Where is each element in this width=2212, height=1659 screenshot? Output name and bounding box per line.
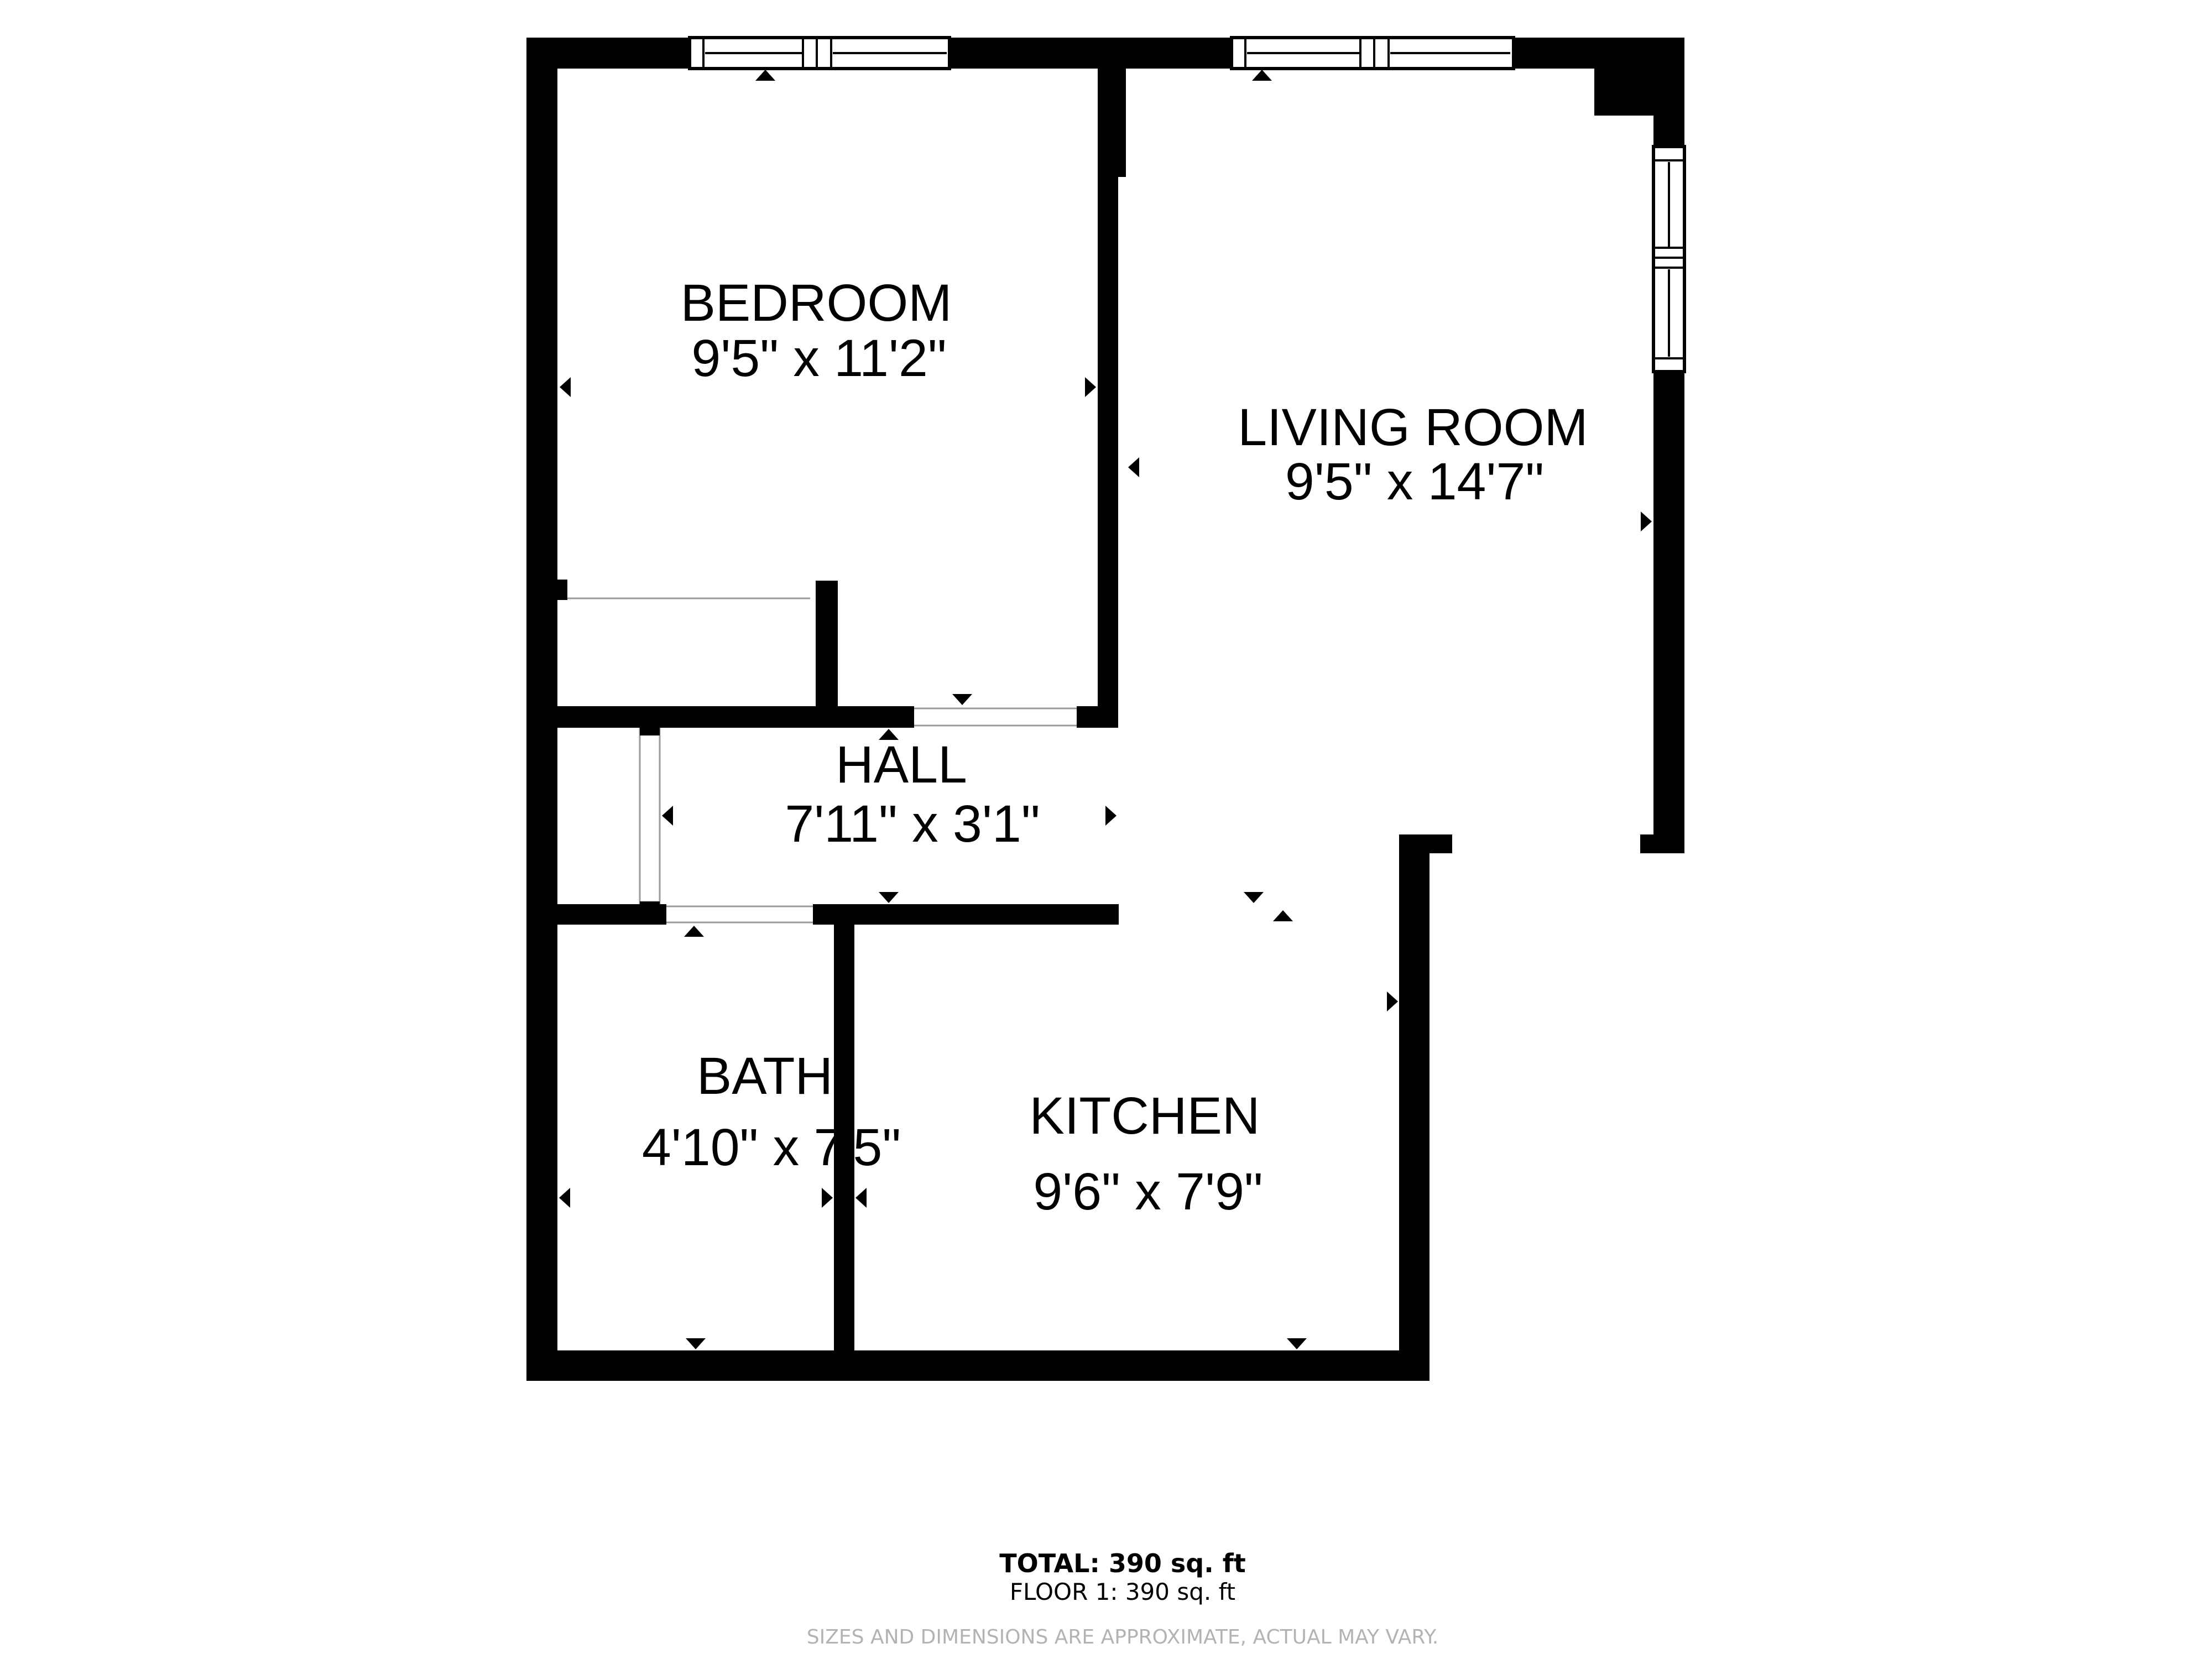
room-dims-hall: 7'11" x 3'1"	[785, 795, 1040, 853]
wall-bedroom-living-divider-top	[1098, 69, 1126, 177]
bath-arrow-down-icon	[686, 1338, 706, 1349]
bath-door-threshold	[666, 906, 813, 922]
living-room-arrow-up-icon	[1252, 70, 1272, 81]
wall-bedroom-door-jamb	[1077, 706, 1118, 728]
room-label-bath: BATH	[697, 1047, 833, 1105]
room-dims-bath: 4'10" x 7'5"	[642, 1118, 901, 1177]
kitchen-arrow-up-icon	[1273, 910, 1293, 921]
hall-door-stub-top	[640, 728, 660, 735]
bedroom-arrow-up-icon	[755, 70, 775, 81]
wall-hall-bottom-mid	[813, 904, 1119, 925]
bedroom-door-threshold	[914, 708, 1077, 726]
bedroom-arrow-down-icon	[952, 694, 972, 705]
hall-arrow-left-icon	[662, 806, 673, 826]
living-room-arrow-right-icon	[1641, 512, 1652, 531]
wall-exterior-right	[1653, 372, 1684, 853]
kitchen-arrow-left-icon	[855, 1188, 867, 1208]
bedroom-arrow-right-icon	[1085, 377, 1096, 397]
wall-right-notch	[1594, 69, 1684, 116]
wall-right-above-window	[1653, 116, 1684, 147]
room-label-hall: HALL	[836, 735, 967, 794]
bedroom-window	[690, 38, 950, 69]
wall-hall-top	[526, 706, 914, 728]
room-label-living-room: LIVING ROOM	[1238, 398, 1588, 457]
bedroom-arrow-left-icon	[560, 377, 571, 397]
room-label-kitchen: KITCHEN	[1030, 1087, 1260, 1145]
room-label-bedroom: BEDROOM	[681, 274, 952, 332]
bath-arrow-right-icon	[822, 1188, 833, 1208]
wall-exterior-bottom	[526, 1350, 1430, 1381]
hall-arrow-right-icon	[1105, 806, 1117, 826]
floor-plan-svg: BEDROOM 9'5" x 11'2" LIVING ROOM 9'5" x …	[0, 0, 2212, 1659]
wall-closet-jamb	[557, 580, 567, 600]
hall-arrow-down-icon	[879, 892, 899, 903]
room-dims-bedroom: 9'5" x 11'2"	[691, 329, 946, 388]
summary-block: TOTAL: 390 sq. ft FLOOR 1: 390 sq. ft SI…	[807, 1548, 1438, 1648]
wall-right-foot	[1640, 834, 1684, 853]
wall-bedroom-living-divider	[1098, 177, 1118, 706]
hall-arrow-up-icon	[879, 729, 899, 740]
kitchen-arrow-down-icon	[1287, 1338, 1307, 1349]
total-area-text: TOTAL: 390 sq. ft	[999, 1548, 1245, 1578]
living-room-window-top	[1232, 38, 1514, 69]
wall-bath-kitchen-divider	[834, 925, 854, 1350]
bath-arrow-left-icon	[559, 1188, 570, 1208]
hall-door-stub-bottom	[640, 901, 660, 910]
hall-door-leaf	[640, 728, 660, 905]
wall-closet-right	[816, 581, 838, 706]
kitchen-arrow-right-icon	[1387, 992, 1398, 1011]
living-room-window-right	[1653, 147, 1684, 372]
floor-plan-page: BEDROOM 9'5" x 11'2" LIVING ROOM 9'5" x …	[0, 0, 2212, 1659]
floor-area-text: FLOOR 1: 390 sq. ft	[1010, 1578, 1235, 1605]
bath-arrow-up-icon	[684, 926, 704, 937]
room-dims-kitchen: 9'6" x 7'9"	[1033, 1162, 1262, 1221]
living-room-arrow-down-icon	[1244, 892, 1264, 903]
room-dims-living-room: 9'5" x 14'7"	[1285, 452, 1544, 511]
living-room-arrow-left-icon	[1128, 457, 1139, 477]
disclaimer-text: SIZES AND DIMENSIONS ARE APPROXIMATE, AC…	[807, 1626, 1438, 1648]
wall-kitchen-right	[1399, 834, 1430, 1350]
